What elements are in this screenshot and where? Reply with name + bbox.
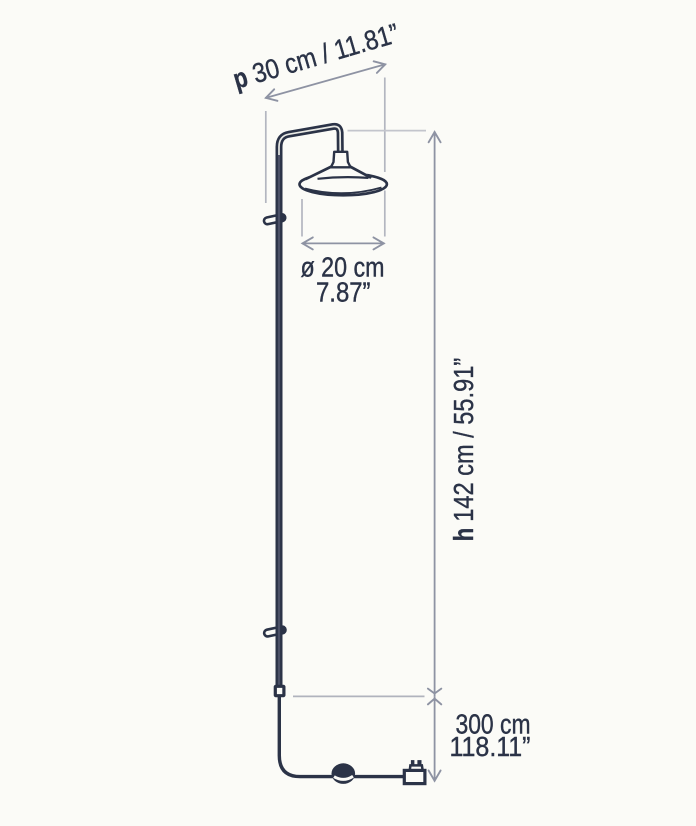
svg-text:118.11”: 118.11” — [450, 731, 531, 762]
svg-text:7.87”: 7.87” — [316, 277, 371, 308]
svg-text:142 cm / 55.91”: 142 cm / 55.91” — [448, 358, 479, 522]
svg-text:h: h — [448, 528, 479, 542]
